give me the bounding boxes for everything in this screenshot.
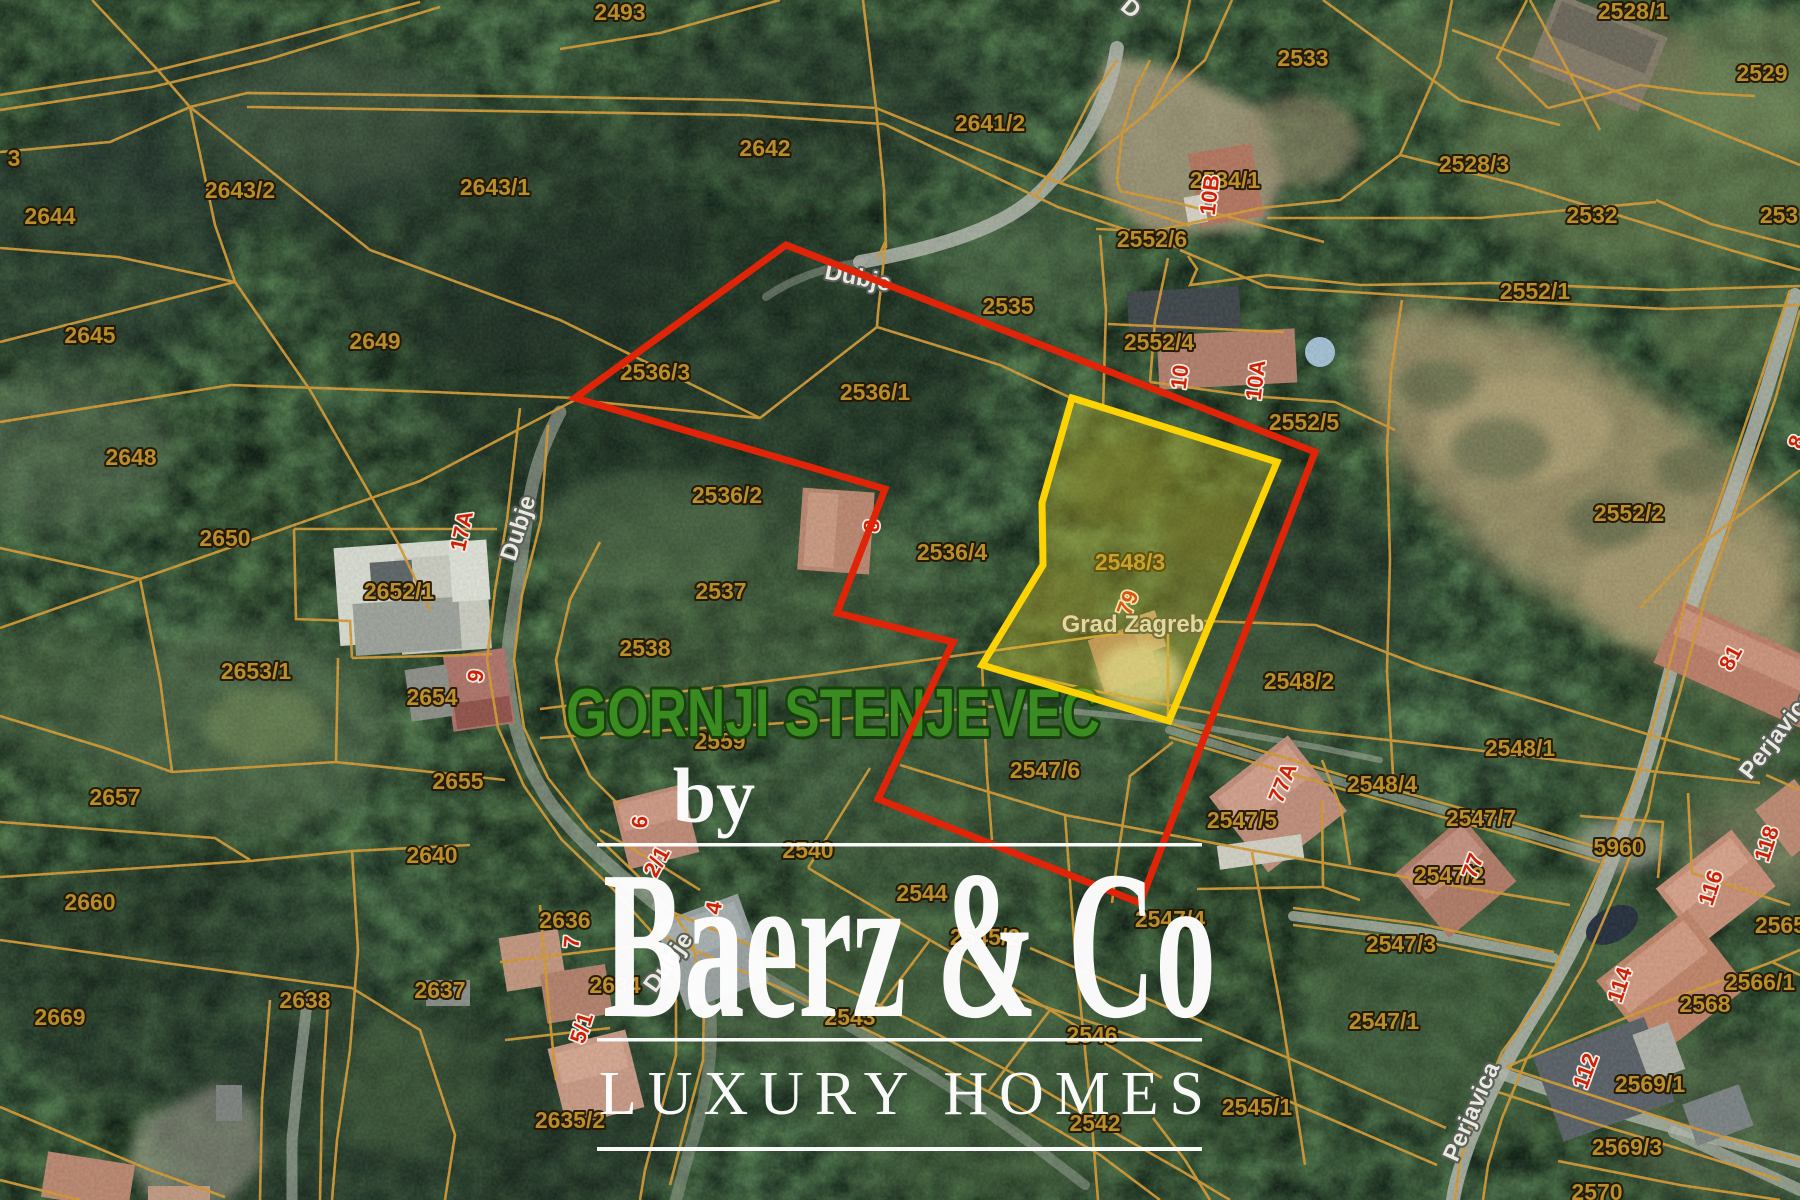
- svg-text:2547/7: 2547/7: [1446, 805, 1516, 831]
- svg-text:10A: 10A: [1241, 358, 1271, 401]
- svg-text:2644: 2644: [24, 203, 75, 229]
- svg-text:2528/1: 2528/1: [1598, 0, 1669, 24]
- svg-text:2548/2: 2548/2: [1264, 668, 1334, 694]
- svg-text:2569/3: 2569/3: [1592, 1134, 1662, 1160]
- svg-text:2638: 2638: [279, 987, 330, 1013]
- svg-text:2641/2: 2641/2: [955, 110, 1025, 136]
- svg-text:2532: 2532: [1566, 202, 1617, 228]
- svg-text:GORNJI STENJEVEC: GORNJI STENJEVEC: [566, 675, 1100, 751]
- svg-text:2570: 2570: [1571, 1179, 1622, 1200]
- svg-text:2547/5: 2547/5: [1207, 807, 1278, 833]
- svg-text:2636: 2636: [539, 907, 590, 933]
- svg-text:2536/2: 2536/2: [692, 482, 762, 508]
- svg-text:2537: 2537: [695, 578, 746, 604]
- svg-text:2545/1: 2545/1: [1222, 1094, 1293, 1120]
- svg-text:10B: 10B: [1195, 173, 1225, 216]
- svg-text:by: by: [673, 752, 755, 839]
- svg-text:2637: 2637: [414, 977, 465, 1003]
- svg-text:2566/1: 2566/1: [1725, 969, 1796, 995]
- svg-text:2568: 2568: [1679, 991, 1730, 1017]
- svg-text:2655: 2655: [432, 768, 483, 794]
- svg-text:2552/1: 2552/1: [1500, 278, 1571, 304]
- svg-text:2547/3: 2547/3: [1366, 931, 1436, 957]
- svg-text:2552/6: 2552/6: [1117, 226, 1187, 252]
- svg-text:2547/6: 2547/6: [1010, 757, 1080, 783]
- svg-text:2642: 2642: [739, 135, 790, 161]
- svg-text:2528/3: 2528/3: [1439, 151, 1509, 177]
- svg-text:2548/4: 2548/4: [1347, 771, 1418, 797]
- svg-text:2535: 2535: [982, 293, 1033, 319]
- svg-text:2669: 2669: [34, 1004, 85, 1030]
- svg-text:2653/1: 2653/1: [221, 658, 292, 684]
- svg-text:2533: 2533: [1277, 45, 1328, 71]
- svg-text:2643/1: 2643/1: [460, 174, 531, 200]
- svg-text:2645: 2645: [64, 322, 115, 348]
- svg-text:2643/2: 2643/2: [205, 177, 275, 203]
- svg-text:2657: 2657: [89, 784, 140, 810]
- svg-text:2548/1: 2548/1: [1485, 735, 1556, 761]
- svg-text:2552/5: 2552/5: [1269, 409, 1340, 435]
- svg-text:253: 253: [1760, 202, 1798, 228]
- svg-text:2536/4: 2536/4: [917, 539, 988, 565]
- svg-text:2552/4: 2552/4: [1124, 329, 1195, 355]
- svg-text:2650: 2650: [199, 525, 250, 551]
- svg-text:2547/1: 2547/1: [1349, 1008, 1420, 1034]
- svg-text:2652/1: 2652/1: [364, 578, 435, 604]
- svg-text:2648: 2648: [105, 444, 156, 470]
- svg-text:10: 10: [1166, 363, 1194, 390]
- svg-text:2552/2: 2552/2: [1594, 500, 1664, 526]
- svg-text:5960: 5960: [1593, 834, 1644, 860]
- svg-text:2640: 2640: [406, 842, 457, 868]
- svg-text:2529: 2529: [1736, 60, 1787, 86]
- svg-text:2565/1: 2565/1: [1755, 912, 1800, 938]
- svg-text:2654: 2654: [406, 684, 457, 710]
- svg-text:2493: 2493: [594, 0, 645, 25]
- svg-text:2538: 2538: [619, 635, 670, 661]
- svg-text:2536/3: 2536/3: [620, 359, 690, 385]
- svg-text:2649: 2649: [349, 328, 400, 354]
- svg-text:2536/1: 2536/1: [840, 379, 911, 405]
- svg-text:3: 3: [8, 145, 21, 171]
- svg-text:Baerz & Co: Baerz & Co: [603, 827, 1216, 1062]
- svg-text:2635/2: 2635/2: [535, 1107, 605, 1133]
- svg-text:2569/1: 2569/1: [1615, 1071, 1686, 1097]
- svg-text:7: 7: [559, 935, 585, 949]
- svg-text:2660: 2660: [64, 889, 115, 915]
